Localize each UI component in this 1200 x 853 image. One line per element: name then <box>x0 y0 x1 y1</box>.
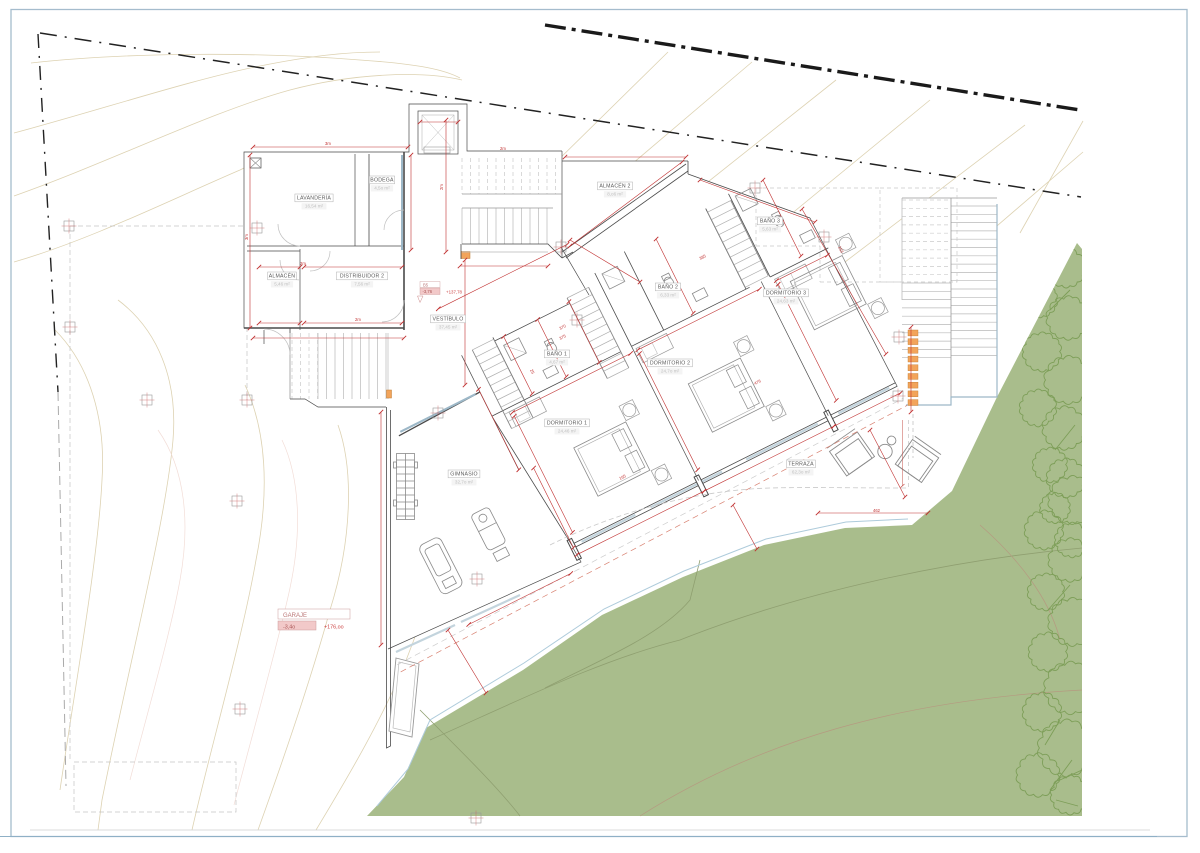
svg-text:BAÑO 1: BAÑO 1 <box>547 351 567 358</box>
svg-text:VESTÍBULO: VESTÍBULO <box>433 316 464 323</box>
svg-text:2m: 2m <box>439 184 444 190</box>
svg-text:4,67 m²: 4,67 m² <box>549 360 565 365</box>
svg-text:3m: 3m <box>325 141 331 146</box>
svg-text:24,46 m²: 24,46 m² <box>558 429 577 434</box>
svg-text:3m: 3m <box>244 234 249 240</box>
svg-text:ALMACÉN: ALMACÉN <box>269 273 296 280</box>
svg-text:ALMACÉN 2: ALMACÉN 2 <box>599 183 630 190</box>
svg-text:6,33 m²: 6,33 m² <box>660 293 676 298</box>
svg-text:-3,76: -3,76 <box>423 289 433 294</box>
svg-text:62,3o m²: 62,3o m² <box>792 470 811 475</box>
svg-text:2m: 2m <box>500 146 506 151</box>
svg-text:2m: 2m <box>300 261 306 266</box>
svg-text:24,63 m²: 24,63 m² <box>777 299 796 304</box>
svg-text:DORMITORIO 1: DORMITORIO 1 <box>547 421 587 427</box>
svg-text:+176,oo: +176,oo <box>324 625 344 631</box>
svg-text:462: 462 <box>873 508 881 513</box>
svg-text:5,46 m²: 5,46 m² <box>274 282 290 287</box>
svg-text:16,54 m²: 16,54 m² <box>305 204 324 209</box>
svg-text:32,7o m²: 32,7o m² <box>455 480 474 485</box>
svg-text:DISTRIBUIDOR 2: DISTRIBUIDOR 2 <box>340 274 384 280</box>
svg-text:GIMNASIO: GIMNASIO <box>450 472 478 478</box>
svg-text:BAÑO 2: BAÑO 2 <box>658 284 678 291</box>
svg-text:LAVANDERÍA: LAVANDERÍA <box>297 195 331 202</box>
svg-text:+137,78: +137,78 <box>446 290 463 295</box>
svg-text:B5: B5 <box>423 282 429 287</box>
svg-text:7,56 m²: 7,56 m² <box>354 282 370 287</box>
svg-text:4,5o m²: 4,5o m² <box>374 186 390 191</box>
svg-text:5,63 m²: 5,63 m² <box>762 227 778 232</box>
svg-text:8,o6 m²: 8,o6 m² <box>607 192 623 197</box>
svg-text:37,45 m²: 37,45 m² <box>439 325 458 330</box>
svg-text:DORMITORIO 3: DORMITORIO 3 <box>766 291 806 297</box>
svg-text:BODEGA: BODEGA <box>370 178 394 184</box>
svg-text:-3,4o: -3,4o <box>283 624 295 630</box>
svg-text:BAÑO 3: BAÑO 3 <box>760 218 780 225</box>
svg-text:GARAJE: GARAJE <box>283 613 307 619</box>
svg-text:DORMITORIO 2: DORMITORIO 2 <box>650 361 690 367</box>
svg-text:TERRAZA: TERRAZA <box>788 462 814 468</box>
svg-text:24,7o m²: 24,7o m² <box>661 369 680 374</box>
svg-text:2m: 2m <box>355 317 361 322</box>
